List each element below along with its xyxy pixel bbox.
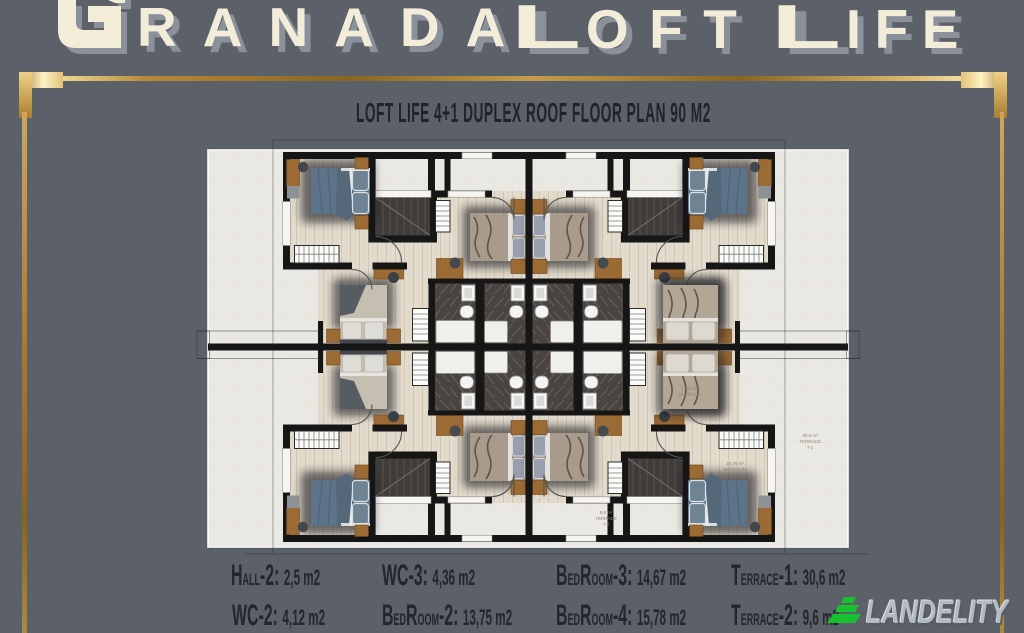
svg-text:BEDROOM: BEDROOM [678,392,702,397]
svg-text:T-1: T-1 [807,445,814,450]
svg-text:15,78 m²: 15,78 m² [726,461,744,466]
svg-text:5,9 m²: 5,9 m² [600,510,613,515]
svg-text:14,67 m²: 14,67 m² [681,386,699,391]
svg-text:TERRACE: TERRACE [595,516,617,521]
svg-text:TERRACE: TERRACE [799,439,821,444]
svg-text:30,6 m²: 30,6 m² [802,433,818,438]
svg-text:BEDROOM: BEDROOM [723,467,747,472]
svg-text:T-2: T-2 [603,522,610,527]
